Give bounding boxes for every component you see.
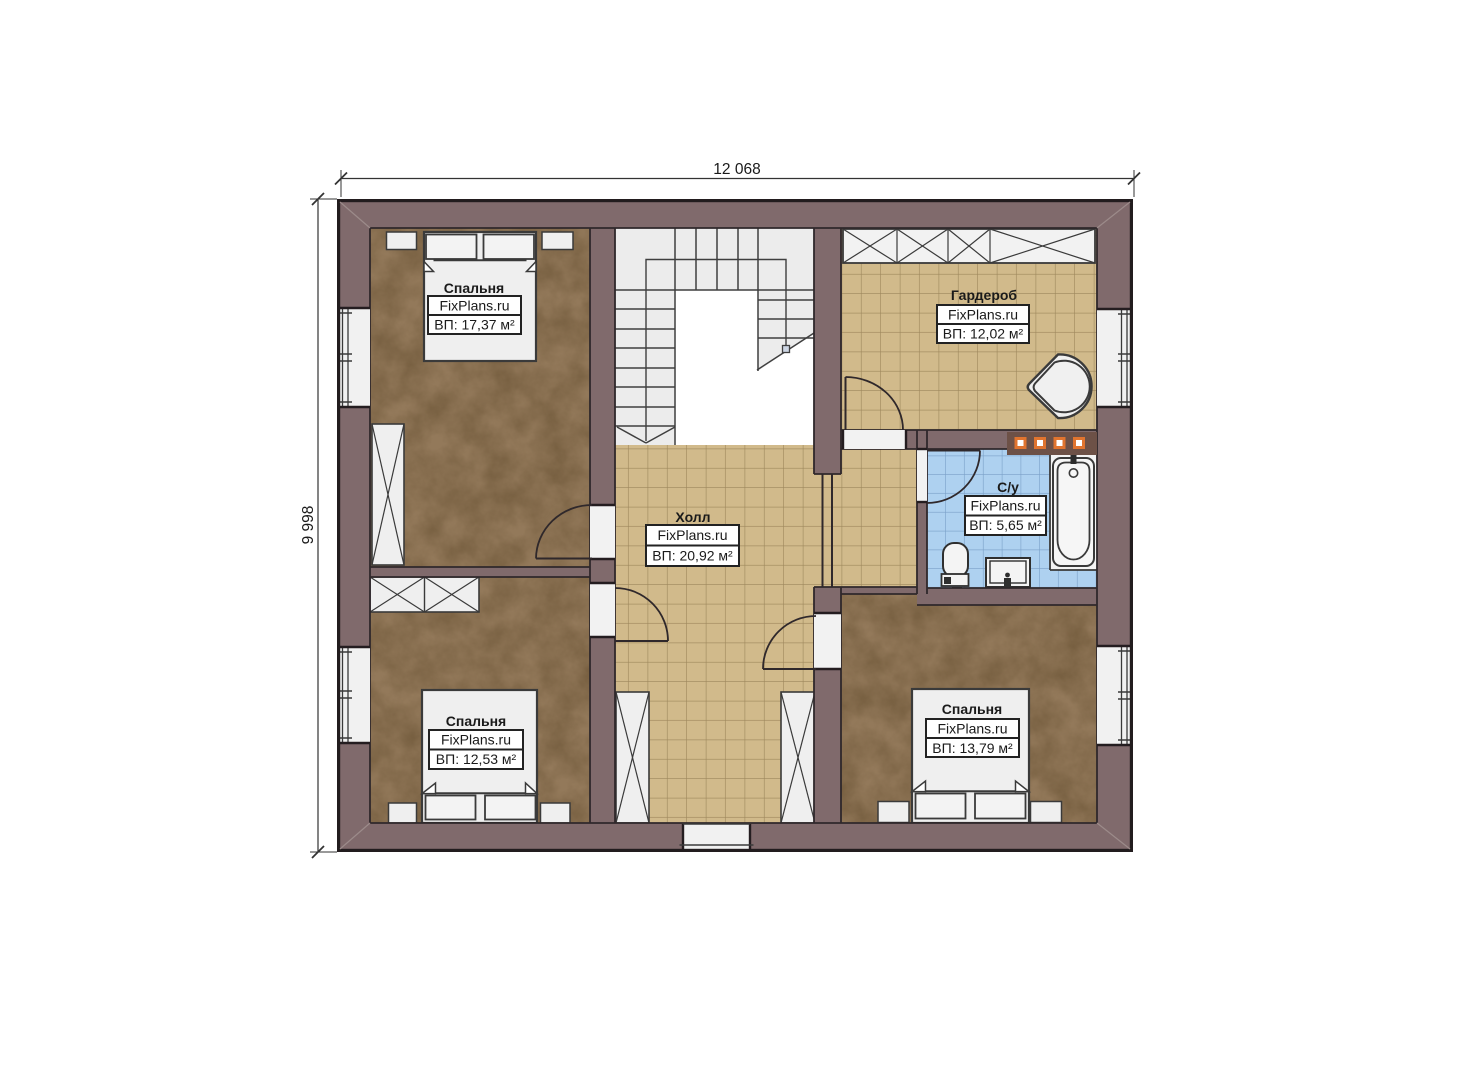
- svg-text:12 068: 12 068: [713, 161, 760, 178]
- svg-text:9 998: 9 998: [300, 506, 317, 545]
- svg-text:FixPlans.ru: FixPlans.ru: [657, 527, 727, 543]
- svg-text:ВП: 17,37 м²: ВП: 17,37 м²: [434, 317, 515, 333]
- svg-text:Гардероб: Гардероб: [951, 287, 1018, 303]
- svg-text:ВП: 5,65 м²: ВП: 5,65 м²: [969, 517, 1042, 533]
- svg-text:FixPlans.ru: FixPlans.ru: [439, 298, 509, 314]
- svg-text:FixPlans.ru: FixPlans.ru: [970, 498, 1040, 514]
- svg-text:FixPlans.ru: FixPlans.ru: [948, 307, 1018, 323]
- svg-text:Спальня: Спальня: [942, 701, 1002, 717]
- svg-text:ВП: 12,53 м²: ВП: 12,53 м²: [436, 751, 517, 767]
- svg-text:FixPlans.ru: FixPlans.ru: [441, 732, 511, 748]
- svg-text:Спальня: Спальня: [446, 713, 506, 729]
- svg-text:ВП: 20,92 м²: ВП: 20,92 м²: [652, 548, 733, 564]
- svg-text:Холл: Холл: [675, 509, 710, 525]
- svg-text:С/у: С/у: [997, 479, 1019, 495]
- svg-text:ВП: 12,02 м²: ВП: 12,02 м²: [943, 326, 1024, 342]
- svg-text:ВП: 13,79 м²: ВП: 13,79 м²: [932, 740, 1013, 756]
- svg-text:FixPlans.ru: FixPlans.ru: [937, 721, 1007, 737]
- svg-text:Спальня: Спальня: [444, 280, 504, 296]
